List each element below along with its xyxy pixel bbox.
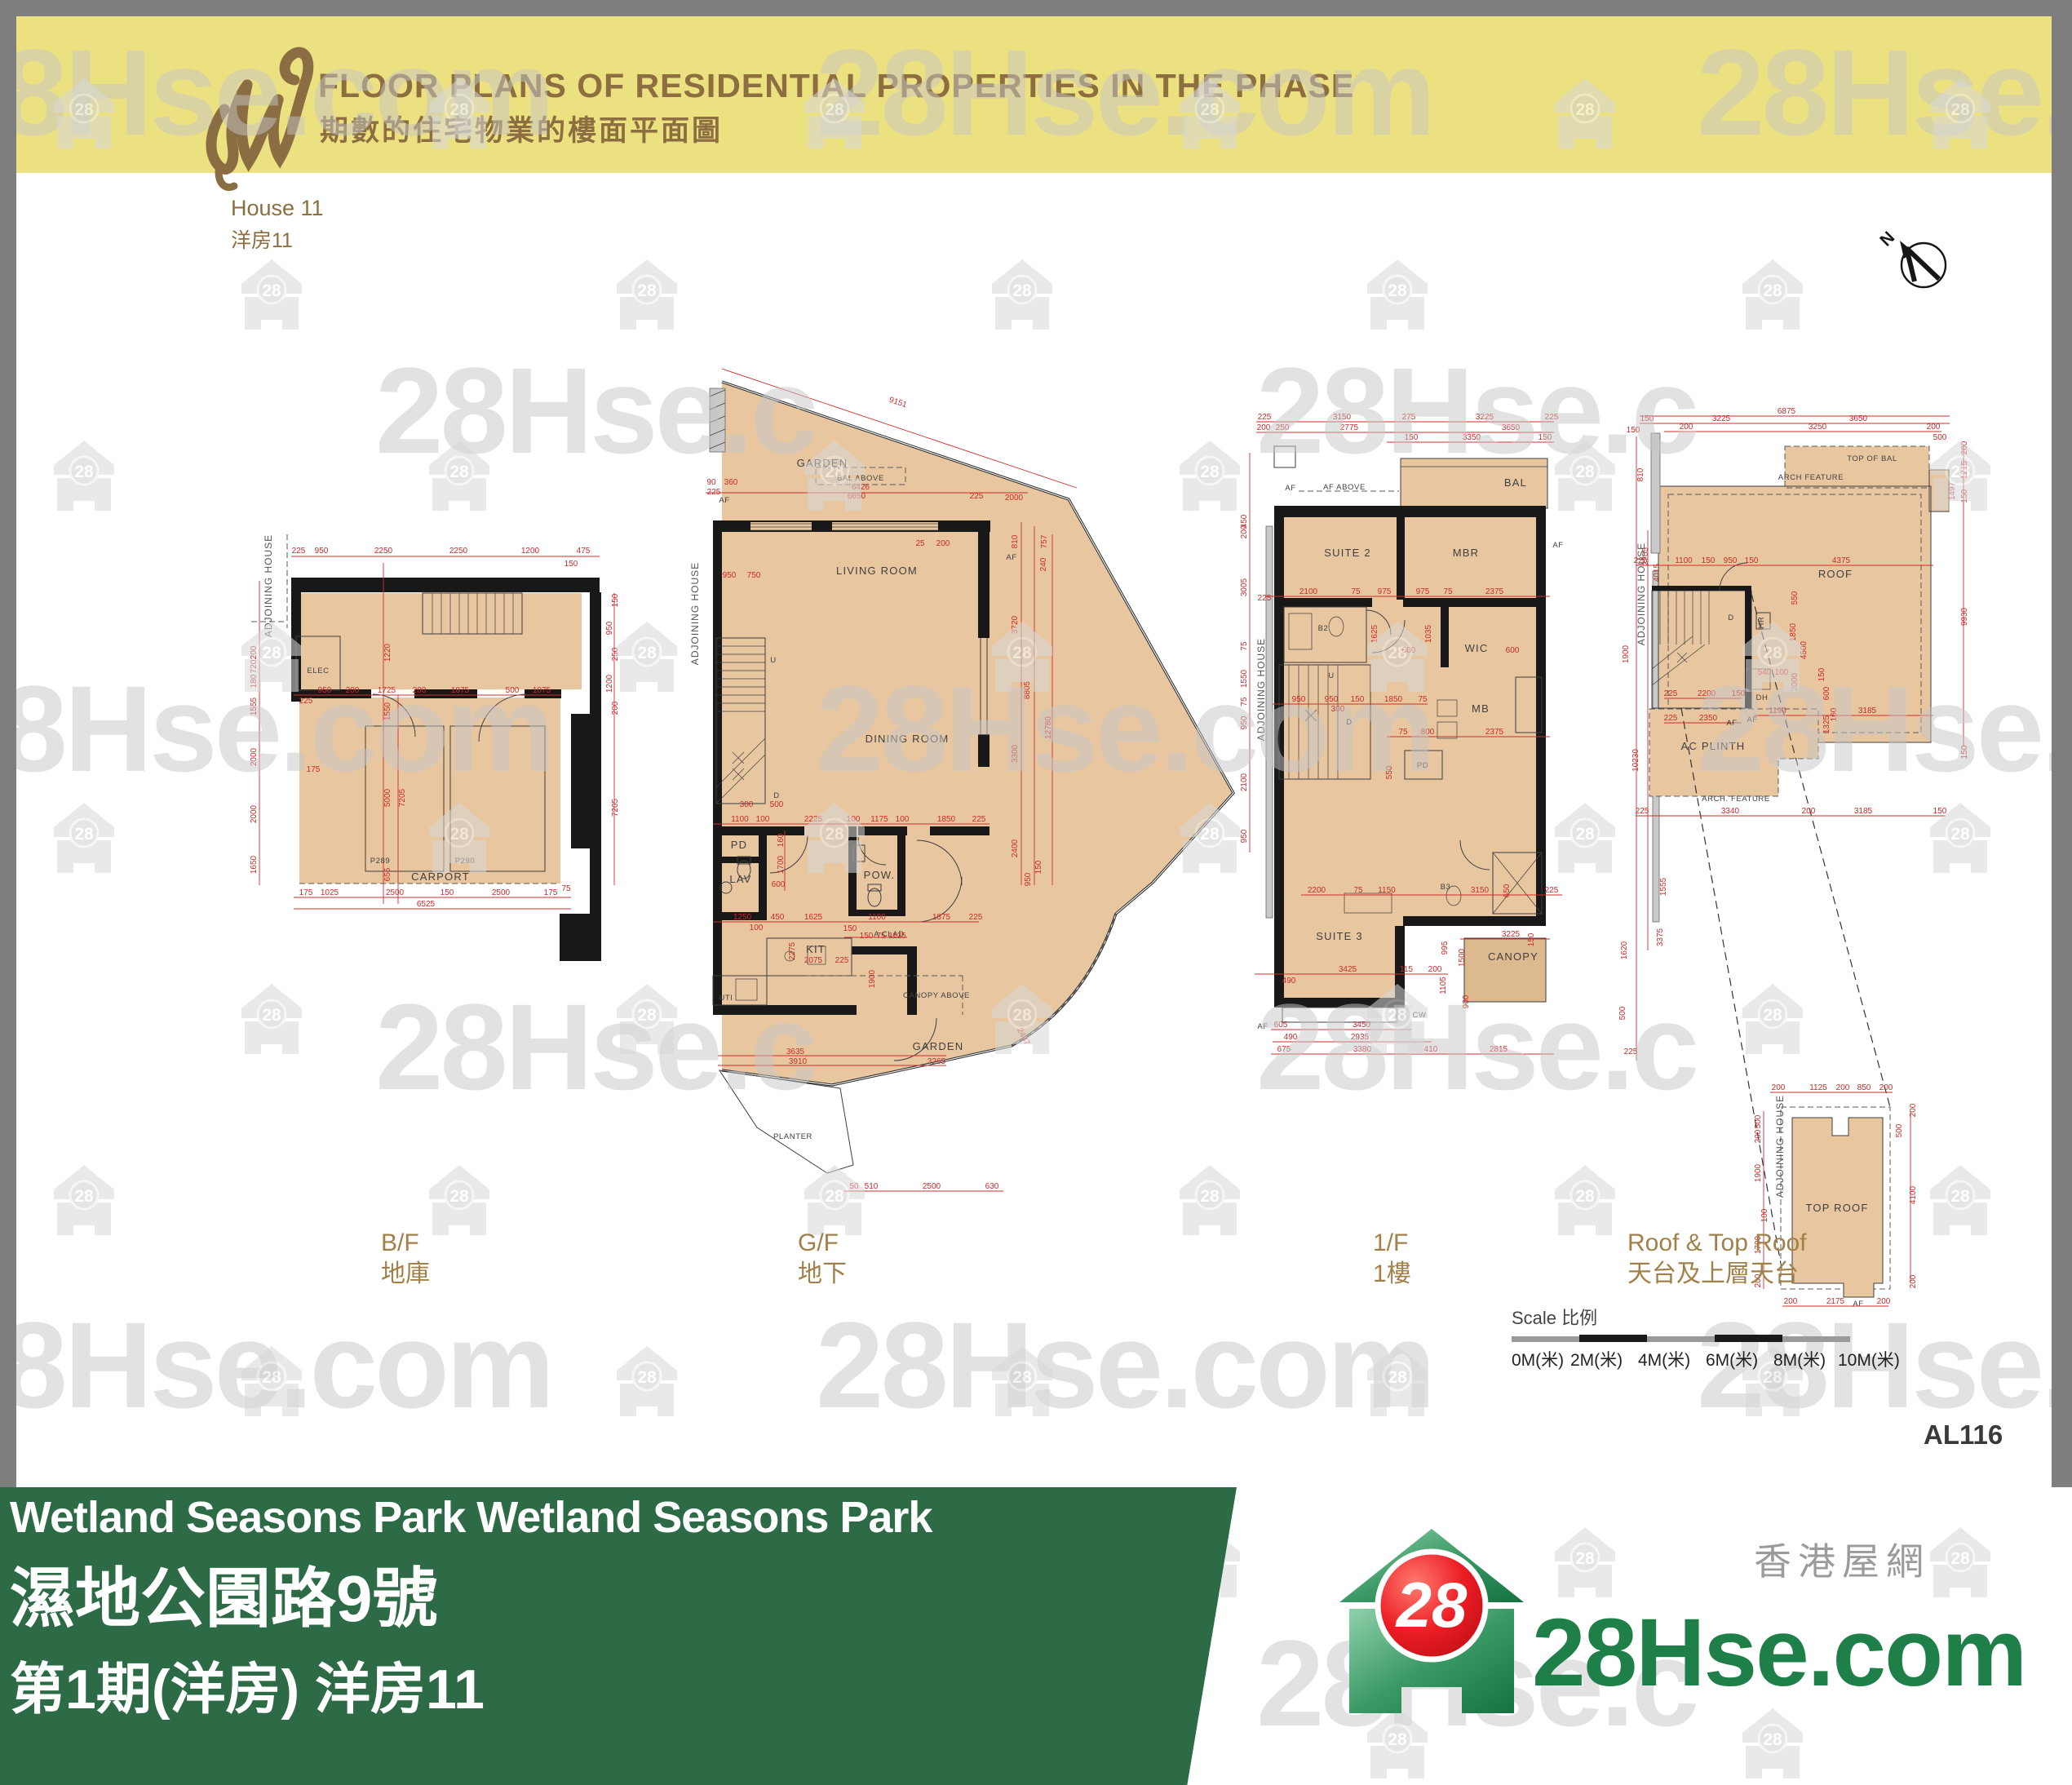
floorplan-sheet: FLOOR PLANS OF RESIDENTIAL PROPERTIES IN… bbox=[0, 0, 2072, 1785]
svg-text:200: 200 bbox=[611, 701, 620, 715]
svg-text:1105: 1105 bbox=[1439, 977, 1448, 994]
caption-gf: G/F 地下 bbox=[798, 1228, 847, 1289]
svg-text:500: 500 bbox=[1895, 1123, 1904, 1137]
svg-text:1200: 1200 bbox=[605, 674, 614, 693]
svg-text:150: 150 bbox=[611, 593, 620, 607]
svg-text:975: 975 bbox=[1416, 587, 1430, 596]
footer-project-name: Wetland Seasons Park Wetland Seasons Par… bbox=[10, 1492, 932, 1543]
logo-badge-number: 28 bbox=[1395, 1569, 1468, 1641]
svg-text:160: 160 bbox=[777, 833, 786, 847]
svg-text:4100: 4100 bbox=[1909, 1185, 1918, 1204]
svg-text:2000: 2000 bbox=[250, 804, 259, 823]
logo-house-icon: 28 bbox=[1338, 1527, 1525, 1723]
svg-text:90: 90 bbox=[706, 478, 716, 487]
svg-text:600: 600 bbox=[1506, 646, 1520, 655]
svg-text:3340: 3340 bbox=[1721, 807, 1740, 816]
svg-text:150: 150 bbox=[1960, 745, 1969, 759]
svg-text:500: 500 bbox=[1618, 1006, 1627, 1020]
svg-text:200: 200 bbox=[1257, 423, 1271, 432]
svg-text:950: 950 bbox=[318, 686, 332, 695]
svg-text:950: 950 bbox=[1240, 829, 1249, 843]
svg-text:200: 200 bbox=[1754, 1129, 1763, 1143]
gf-kit-label: KIT bbox=[806, 943, 826, 955]
header-band: FLOOR PLANS OF RESIDENTIAL PROPERTIES IN… bbox=[16, 16, 2052, 173]
ff-suite3-label: SUITE 3 bbox=[1316, 930, 1363, 942]
svg-text:1100: 1100 bbox=[868, 913, 886, 922]
svg-text:200: 200 bbox=[1960, 441, 1969, 454]
svg-text:1190: 1190 bbox=[1769, 706, 1786, 715]
scale-tick: 2M(米) bbox=[1570, 1347, 1623, 1371]
svg-text:6525: 6525 bbox=[417, 900, 436, 909]
caption-roof: Roof & Top Roof 天台及上層天台 bbox=[1627, 1228, 1807, 1289]
svg-text:1875: 1875 bbox=[932, 913, 951, 922]
svg-text:225: 225 bbox=[1636, 807, 1649, 816]
svg-text:950: 950 bbox=[723, 571, 737, 580]
ff-adjoining-left-label: ADJOINING HOUSE bbox=[1255, 638, 1267, 741]
svg-text:75: 75 bbox=[1418, 695, 1428, 704]
svg-text:1850: 1850 bbox=[937, 815, 956, 824]
svg-text:750: 750 bbox=[747, 571, 761, 580]
svg-text:150: 150 bbox=[1702, 556, 1716, 565]
svg-text:2275: 2275 bbox=[788, 941, 797, 960]
house-label-zh: 洋房11 bbox=[231, 224, 324, 254]
svg-text:100: 100 bbox=[750, 924, 764, 932]
svg-text:950: 950 bbox=[605, 621, 614, 635]
house-label-en: House 11 bbox=[231, 196, 324, 221]
svg-text:3720: 3720 bbox=[1011, 615, 1020, 634]
ff-cw-label: CW bbox=[1412, 1011, 1426, 1020]
logo-brand-zh: 香港屋網 bbox=[1754, 1532, 1930, 1586]
gf-uti-label: UTI bbox=[719, 994, 733, 1003]
svg-text:4500: 4500 bbox=[1800, 640, 1809, 659]
svg-text:650: 650 bbox=[1503, 884, 1512, 897]
caption-bf-zh: 地庫 bbox=[381, 1259, 430, 1290]
svg-text:225: 225 bbox=[969, 913, 983, 922]
svg-text:500: 500 bbox=[1933, 433, 1947, 442]
svg-text:2500: 2500 bbox=[386, 888, 405, 897]
svg-text:225: 225 bbox=[1545, 886, 1559, 895]
svg-text:200: 200 bbox=[1927, 423, 1941, 432]
gf-canopy-above-label: CANOPY ABOVE bbox=[903, 991, 970, 1000]
svg-text:550: 550 bbox=[1385, 765, 1394, 779]
svg-text:225: 225 bbox=[1545, 413, 1559, 422]
caption-ff: 1/F 1樓 bbox=[1373, 1228, 1411, 1289]
gf-pd-label: PD bbox=[731, 839, 747, 851]
roof-d-label: D bbox=[1728, 613, 1733, 622]
caption-bf: B/F 地庫 bbox=[381, 1228, 430, 1289]
svg-text:1725: 1725 bbox=[378, 686, 396, 695]
svg-text:2815: 2815 bbox=[1490, 1045, 1508, 1054]
gf-pow-label: POW. bbox=[864, 869, 896, 881]
svg-text:3005: 3005 bbox=[1240, 578, 1249, 596]
gf-u-label: U bbox=[770, 656, 776, 665]
svg-text:225: 225 bbox=[707, 488, 721, 497]
svg-text:360: 360 bbox=[724, 478, 738, 487]
svg-text:950: 950 bbox=[1292, 695, 1306, 704]
svg-text:2375: 2375 bbox=[1485, 587, 1504, 596]
svg-text:1075: 1075 bbox=[533, 686, 551, 695]
svg-text:2000: 2000 bbox=[1005, 494, 1024, 503]
svg-text:250: 250 bbox=[1276, 423, 1290, 432]
toproof-label: TOP ROOF bbox=[1805, 1202, 1868, 1214]
ff-b3-label: B3 bbox=[1441, 883, 1451, 892]
svg-text:25: 25 bbox=[915, 539, 925, 548]
svg-text:1850: 1850 bbox=[1789, 622, 1798, 641]
svg-text:490: 490 bbox=[1284, 1033, 1298, 1042]
svg-text:2250: 2250 bbox=[374, 547, 393, 556]
svg-text:180: 180 bbox=[250, 674, 259, 688]
svg-text:2200: 2200 bbox=[1698, 689, 1716, 698]
svg-text:600: 600 bbox=[1822, 686, 1831, 700]
roof-structure bbox=[1649, 433, 1949, 1297]
svg-text:225: 225 bbox=[835, 956, 849, 965]
scale-tick: 0M(米) bbox=[1512, 1347, 1564, 1371]
svg-text:810: 810 bbox=[1011, 534, 1020, 548]
ff-b2-label: B2 bbox=[1318, 624, 1329, 633]
roof-hr-label: HR bbox=[1757, 617, 1766, 629]
svg-text:2000: 2000 bbox=[250, 747, 259, 766]
svg-text:200: 200 bbox=[1680, 423, 1693, 432]
plan-bf-drawing: ADJOINING HOUSE ELEC CARPORT P289 P290 2… bbox=[228, 522, 644, 979]
svg-text:75: 75 bbox=[1398, 728, 1408, 737]
svg-text:600: 600 bbox=[1402, 646, 1416, 655]
svg-text:630: 630 bbox=[985, 1182, 999, 1191]
roof-topofbal-label: TOP OF BAL bbox=[1847, 454, 1897, 463]
caption-ff-zh: 1樓 bbox=[1373, 1259, 1411, 1290]
svg-text:950: 950 bbox=[1024, 872, 1033, 886]
svg-text:200: 200 bbox=[413, 686, 427, 695]
gf-garden-bottom-label: GARDEN bbox=[913, 1040, 964, 1052]
svg-text:1200: 1200 bbox=[521, 547, 540, 556]
ff-d-label: D bbox=[1346, 718, 1352, 727]
ff-u-label: U bbox=[1328, 671, 1334, 680]
svg-text:1625: 1625 bbox=[804, 913, 823, 922]
svg-text:2100: 2100 bbox=[1240, 773, 1249, 791]
plan-ff-drawing: AF AF ABOVE BAL SUITE 2 MBR B2 WIC U D M… bbox=[1236, 400, 1676, 1069]
footer-address: 濕地公園路9號 bbox=[10, 1546, 438, 1641]
svg-text:675: 675 bbox=[1277, 1045, 1291, 1054]
svg-text:4375: 4375 bbox=[1832, 556, 1851, 565]
scale-tick: 10M(米) bbox=[1838, 1347, 1900, 1371]
svg-text:150: 150 bbox=[1745, 556, 1759, 565]
svg-text:1220: 1220 bbox=[383, 643, 392, 662]
svg-text:225: 225 bbox=[1634, 556, 1648, 565]
scale-tick: 4M(米) bbox=[1638, 1347, 1690, 1371]
gf-planter-label: PLANTER bbox=[773, 1132, 812, 1141]
svg-text:200: 200 bbox=[1428, 965, 1442, 974]
svg-text:225: 225 bbox=[1258, 413, 1272, 422]
ff-wic-label: WIC bbox=[1465, 642, 1489, 654]
svg-text:200: 200 bbox=[1877, 1297, 1891, 1306]
svg-text:225: 225 bbox=[299, 697, 313, 706]
svg-text:150: 150 bbox=[441, 888, 454, 897]
svg-text:1035: 1035 bbox=[1424, 624, 1433, 643]
svg-text:6650: 6650 bbox=[848, 492, 866, 501]
svg-text:757: 757 bbox=[1040, 534, 1049, 548]
svg-text:3225: 3225 bbox=[1476, 413, 1494, 422]
svg-text:2250: 2250 bbox=[449, 547, 468, 556]
svg-text:200: 200 bbox=[1836, 1083, 1850, 1092]
svg-text:75: 75 bbox=[1240, 641, 1249, 651]
svg-text:150: 150 bbox=[1640, 414, 1654, 423]
svg-text:240: 240 bbox=[1039, 557, 1048, 571]
svg-text:2775: 2775 bbox=[1340, 423, 1359, 432]
svg-text:225: 225 bbox=[1664, 714, 1678, 723]
svg-text:200: 200 bbox=[1240, 525, 1249, 538]
svg-text:3265: 3265 bbox=[928, 1057, 946, 1066]
ff-bal-label: BAL bbox=[1504, 476, 1527, 489]
svg-text:200: 200 bbox=[250, 645, 259, 659]
svg-text:410: 410 bbox=[1424, 1045, 1438, 1054]
svg-text:150: 150 bbox=[860, 932, 874, 941]
scale-bar-track bbox=[1512, 1336, 1848, 1342]
svg-text:250: 250 bbox=[611, 647, 620, 661]
svg-text:2075: 2075 bbox=[804, 956, 823, 965]
svg-text:900: 900 bbox=[1462, 994, 1471, 1008]
page-title: FLOOR PLANS OF RESIDENTIAL PROPERTIES IN… bbox=[318, 67, 1354, 105]
gf-bal-above-label: BAL ABOVE bbox=[837, 474, 884, 483]
svg-text:75: 75 bbox=[1240, 697, 1249, 706]
caption-roof-zh: 天台及上層天台 bbox=[1627, 1259, 1807, 1290]
svg-text:150: 150 bbox=[1933, 807, 1947, 816]
gf-adjoining-label: ADJOINING HOUSE bbox=[689, 562, 701, 665]
svg-text:3250: 3250 bbox=[1809, 423, 1827, 432]
bf-carport-label: CARPORT bbox=[411, 870, 470, 883]
svg-text:2400: 2400 bbox=[1011, 839, 1020, 857]
ff-mb-label: MB bbox=[1472, 702, 1490, 715]
ff-af-bottom-label: AF bbox=[1257, 1022, 1268, 1031]
svg-text:200: 200 bbox=[1772, 1083, 1786, 1092]
ff-af-right-label: AF bbox=[1552, 541, 1563, 550]
bf-adjoining-label: ADJOINING HOUSE bbox=[263, 534, 274, 637]
svg-text:1550: 1550 bbox=[383, 702, 392, 720]
svg-text:720: 720 bbox=[250, 659, 259, 673]
svg-text:300: 300 bbox=[740, 800, 754, 809]
svg-text:8805: 8805 bbox=[1023, 680, 1032, 699]
svg-text:2200: 2200 bbox=[1308, 886, 1326, 895]
svg-text:3350: 3350 bbox=[1463, 433, 1481, 442]
svg-text:6875: 6875 bbox=[1778, 407, 1796, 416]
toproof-adjoining-label: ADJOINING HOUSE bbox=[1774, 1095, 1786, 1198]
svg-text:150: 150 bbox=[1527, 932, 1536, 946]
svg-text:2500: 2500 bbox=[492, 888, 511, 897]
svg-text:75: 75 bbox=[1351, 587, 1361, 596]
svg-text:225: 225 bbox=[972, 815, 986, 824]
caption-gf-en: G/F bbox=[798, 1228, 847, 1259]
svg-text:3380: 3380 bbox=[1353, 1045, 1372, 1054]
svg-text:150: 150 bbox=[843, 924, 857, 933]
svg-text:1650: 1650 bbox=[250, 855, 259, 874]
logo-brand-text: 28Hse.com bbox=[1532, 1597, 2026, 1708]
caption-gf-zh: 地下 bbox=[798, 1259, 847, 1290]
svg-text:200: 200 bbox=[1909, 1274, 1918, 1288]
svg-text:1497: 1497 bbox=[1948, 481, 1957, 500]
svg-text:500: 500 bbox=[1754, 1114, 1763, 1128]
svg-text:150: 150 bbox=[1817, 667, 1826, 681]
svg-text:2500: 2500 bbox=[923, 1182, 941, 1191]
svg-text:1700: 1700 bbox=[777, 855, 786, 874]
svg-text:200: 200 bbox=[1909, 1103, 1918, 1117]
svg-text:200: 200 bbox=[346, 686, 360, 695]
svg-text:100: 100 bbox=[756, 815, 770, 824]
svg-text:450: 450 bbox=[771, 913, 785, 922]
roof-archfeature-label: ARCH FEATURE bbox=[1778, 473, 1844, 482]
svg-text:3635: 3635 bbox=[786, 1048, 805, 1056]
svg-text:1125: 1125 bbox=[888, 932, 906, 941]
svg-text:300: 300 bbox=[1331, 705, 1345, 714]
svg-text:2350: 2350 bbox=[1699, 714, 1718, 723]
svg-text:115: 115 bbox=[1400, 965, 1413, 974]
ff-suite2-label: SUITE 2 bbox=[1324, 547, 1371, 559]
svg-text:3150: 3150 bbox=[1333, 413, 1352, 422]
svg-text:6426: 6426 bbox=[852, 483, 870, 492]
svg-text:950: 950 bbox=[1724, 556, 1738, 565]
gf-garden-top-label: GARDEN bbox=[797, 457, 848, 469]
svg-text:2000: 2000 bbox=[1791, 672, 1800, 691]
svg-text:1555: 1555 bbox=[250, 697, 259, 715]
svg-text:150: 150 bbox=[1034, 860, 1043, 874]
svg-text:75: 75 bbox=[1353, 886, 1363, 895]
house-label: House 11 洋房11 bbox=[231, 196, 324, 254]
svg-text:1100: 1100 bbox=[1675, 556, 1693, 565]
svg-text:1875: 1875 bbox=[451, 686, 470, 695]
svg-text:1250: 1250 bbox=[733, 913, 752, 922]
frame-top bbox=[0, 0, 2072, 16]
svg-text:500: 500 bbox=[506, 686, 520, 695]
ff-canopy-label: CANOPY bbox=[1488, 950, 1539, 963]
roof-roof-label: ROOF bbox=[1818, 568, 1853, 580]
svg-text:225: 225 bbox=[970, 492, 984, 501]
svg-text:75: 75 bbox=[561, 884, 571, 893]
svg-text:75: 75 bbox=[876, 932, 886, 941]
svg-text:540: 540 bbox=[1758, 668, 1772, 677]
svg-text:150: 150 bbox=[1351, 695, 1365, 704]
gf-living-label: LIVING ROOM bbox=[836, 565, 918, 577]
svg-text:175: 175 bbox=[299, 888, 313, 897]
svg-text:1025: 1025 bbox=[321, 888, 339, 897]
roof-af2-label: AF bbox=[1747, 715, 1757, 724]
ff-af-left-label: AF bbox=[1285, 484, 1295, 493]
svg-text:3450: 3450 bbox=[1353, 1021, 1371, 1030]
svg-text:175: 175 bbox=[544, 888, 558, 897]
caption-roof-en: Roof & Top Roof bbox=[1627, 1228, 1807, 1259]
svg-text:150: 150 bbox=[1960, 489, 1969, 503]
svg-text:850: 850 bbox=[1857, 1083, 1871, 1092]
svg-text:1900: 1900 bbox=[1754, 1163, 1763, 1182]
ff-pd-label: PD bbox=[1417, 761, 1428, 770]
svg-text:800: 800 bbox=[1421, 728, 1435, 737]
svg-text:3225: 3225 bbox=[1502, 930, 1521, 939]
svg-text:200: 200 bbox=[1879, 1083, 1893, 1092]
svg-text:2375: 2375 bbox=[1485, 728, 1504, 737]
svg-text:150: 150 bbox=[564, 560, 578, 569]
bf-elec-label: ELEC bbox=[307, 667, 329, 675]
scale-bar-ticks: 0M(米) 2M(米) 4M(米) 6M(米) 8M(米) 10M(米) bbox=[1512, 1347, 1871, 1368]
roof-af-label: AF bbox=[1726, 719, 1737, 728]
svg-text:950: 950 bbox=[315, 547, 329, 556]
scale-bar: Scale 比例 0M(米) 2M(米) 4M(米) 6M(米) 8M(米) 1… bbox=[1512, 1304, 1871, 1369]
plan-gf-drawing: ADJOINING HOUSE GARDEN BAL ABOVE AF AF L… bbox=[685, 351, 1256, 1207]
svg-text:12780: 12780 bbox=[1044, 716, 1053, 739]
svg-text:605: 605 bbox=[1274, 1021, 1288, 1030]
bf-p290-label: P290 bbox=[455, 857, 476, 866]
svg-text:275: 275 bbox=[1402, 413, 1416, 422]
north-label: N bbox=[1876, 228, 1898, 250]
page-subtitle: 期數的住宅物業的樓面平面圖 bbox=[320, 108, 723, 149]
svg-text:5000: 5000 bbox=[383, 788, 392, 807]
svg-text:9930: 9930 bbox=[1960, 607, 1969, 626]
svg-text:2225: 2225 bbox=[804, 815, 823, 824]
svg-text:2935: 2935 bbox=[1351, 1033, 1370, 1042]
frame-left bbox=[0, 0, 16, 1487]
svg-text:600: 600 bbox=[772, 880, 786, 889]
svg-text:200: 200 bbox=[936, 539, 950, 548]
roof-dh-label: DH bbox=[1756, 693, 1769, 702]
svg-text:150: 150 bbox=[1405, 433, 1419, 442]
scale-tick: 8M(米) bbox=[1773, 1347, 1826, 1371]
svg-text:1550: 1550 bbox=[1240, 669, 1249, 688]
gf-af-right-label: AF bbox=[1006, 553, 1016, 562]
svg-text:100: 100 bbox=[1775, 668, 1789, 677]
svg-text:1175: 1175 bbox=[870, 815, 888, 824]
svg-text:100: 100 bbox=[896, 815, 910, 824]
svg-text:225: 225 bbox=[1258, 594, 1272, 603]
svg-text:475: 475 bbox=[577, 547, 591, 556]
svg-text:2100: 2100 bbox=[1299, 587, 1318, 596]
svg-text:490: 490 bbox=[1282, 977, 1296, 986]
svg-text:150: 150 bbox=[1732, 689, 1746, 698]
svg-text:3650: 3650 bbox=[1849, 414, 1868, 423]
svg-text:3425: 3425 bbox=[1339, 965, 1357, 974]
footer-phase: 第1期(洋房) 洋房11 bbox=[10, 1644, 485, 1725]
north-arrow-icon: N bbox=[1868, 219, 1966, 300]
svg-text:100: 100 bbox=[1760, 1208, 1769, 1222]
svg-text:7205: 7205 bbox=[398, 788, 407, 807]
svg-text:1500: 1500 bbox=[1458, 948, 1467, 967]
svg-text:225: 225 bbox=[1664, 689, 1678, 698]
svg-text:225: 225 bbox=[292, 547, 306, 556]
bf-p289-label: P289 bbox=[370, 857, 391, 866]
svg-text:3225: 3225 bbox=[1712, 414, 1731, 423]
gf-dining-label: DINING ROOM bbox=[866, 733, 950, 745]
frame-right bbox=[2052, 0, 2072, 1487]
ff-mbr-label: MBR bbox=[1453, 547, 1480, 559]
svg-text:3650: 3650 bbox=[1502, 423, 1521, 432]
svg-text:3150: 3150 bbox=[1471, 886, 1490, 895]
gf-d-label: D bbox=[773, 791, 779, 800]
roof-acplinth-label: AC PLINTH bbox=[1681, 740, 1746, 752]
roof-archfeature2-label: ARCH. FEATURE bbox=[1702, 795, 1770, 804]
svg-text:950: 950 bbox=[1325, 695, 1339, 704]
ff-af-above-label: AF ABOVE bbox=[1323, 483, 1366, 492]
svg-text:1125: 1125 bbox=[1809, 1083, 1827, 1092]
svg-text:1150: 1150 bbox=[1378, 886, 1396, 895]
svg-text:1900: 1900 bbox=[868, 969, 877, 988]
gf-af-left-label: AF bbox=[719, 496, 729, 505]
svg-text:3910: 3910 bbox=[789, 1057, 808, 1066]
svg-text:1850: 1850 bbox=[1384, 695, 1403, 704]
svg-text:3185: 3185 bbox=[1858, 706, 1877, 715]
sheet-number: AL116 bbox=[1924, 1420, 2003, 1451]
svg-text:1215: 1215 bbox=[1960, 460, 1969, 479]
svg-text:50: 50 bbox=[849, 1182, 859, 1191]
svg-text:510: 510 bbox=[865, 1182, 879, 1191]
svg-text:655: 655 bbox=[383, 867, 392, 881]
svg-text:200: 200 bbox=[1802, 807, 1816, 816]
site-logo[interactable]: 28 28Hse.com 香港屋網 bbox=[1330, 1517, 2064, 1730]
svg-text:150: 150 bbox=[1539, 433, 1552, 442]
footer-band: Wetland Seasons Park Wetland Seasons Par… bbox=[0, 1487, 1237, 1785]
